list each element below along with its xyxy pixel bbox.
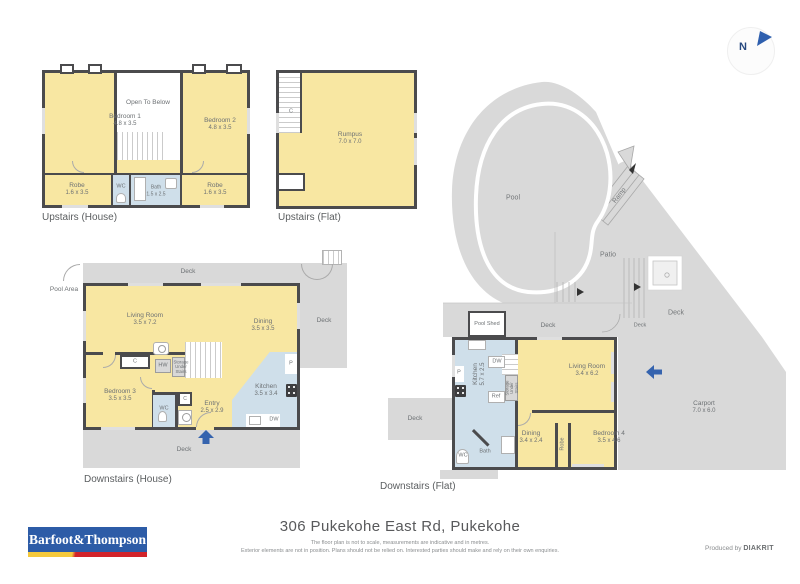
bedroom4-label: Bedroom 4 3.5 x 4.6 (593, 430, 625, 446)
window (83, 311, 86, 341)
pantry-label: P (289, 360, 293, 367)
window (247, 108, 250, 134)
room-name: Bedroom 2 (204, 117, 236, 124)
patio-label: Patio (600, 250, 616, 259)
produced-by: Produced by DIAKRIT (705, 545, 774, 552)
pantry-label: P (457, 369, 461, 376)
dining-label: Dining 3.5 x 3.5 (251, 318, 274, 334)
wall-notch (192, 64, 206, 74)
room-name: Entry (204, 400, 219, 407)
stairs-icon (185, 342, 222, 378)
wall-notch (60, 64, 74, 74)
flat-living-label: Living Room 3.4 x 6.2 (569, 363, 605, 379)
deck-stairs-icon (322, 250, 342, 265)
stairs-icon (279, 73, 300, 133)
sink-icon (468, 340, 486, 350)
room-name: Kitchen (255, 383, 277, 390)
robe-left-label: Robe 1.6 x 3.5 (65, 182, 88, 198)
pool-area-label: Pool Area (50, 286, 78, 294)
house-deck-right-label: Deck (317, 317, 332, 325)
spa-inner (653, 261, 677, 285)
hot-water-label: HW (158, 362, 167, 369)
room-name: Kitchen (472, 363, 479, 385)
entry-label: Entry 2.5 x 2.9 (200, 400, 223, 416)
open-below-label: Open To Below (126, 99, 170, 107)
dishwasher-icon (249, 416, 261, 425)
flat-dining-label: Dining 3.4 x 2.4 (519, 430, 542, 446)
room-name: Dining (522, 430, 540, 437)
wall (555, 423, 558, 467)
bath-label: Bath 1.5 x 2.5 (146, 185, 165, 198)
room-dims: 2.5 x 2.9 (200, 408, 223, 416)
entry-arrow-icon (198, 430, 214, 445)
wc-label: WC (159, 405, 168, 412)
room-name: Robe (207, 182, 223, 189)
wall (568, 423, 571, 467)
storage-label: Storage Under Stairs (505, 377, 520, 400)
window (276, 113, 279, 133)
stove-burners-icon (288, 386, 290, 388)
dishwasher-label: DW (492, 358, 501, 365)
house-deck-right (300, 263, 347, 368)
disclaimer-line1: The floor plan is not to scale, measurem… (0, 540, 800, 546)
flat-deck-bottom (440, 470, 498, 479)
wall-notch (226, 64, 242, 74)
deck-door-label: Deck (634, 322, 647, 329)
room-dims: 7.0 x 7.0 (338, 139, 362, 147)
carport-label: Carport 7.0 x 6.0 (692, 400, 715, 416)
room-dims: 5.7 x 2.5 (480, 362, 488, 385)
room-name: Robe (69, 182, 85, 189)
window (297, 303, 300, 329)
stove-icon (286, 384, 297, 397)
room-dims: 3.5 x 7.2 (127, 320, 163, 328)
room-dims: 4.8 x 3.5 (109, 121, 141, 129)
upstairs-flat-title: Upstairs (Flat) (278, 212, 341, 223)
stove-burners-icon (457, 387, 459, 389)
window (128, 283, 163, 286)
living-room-label: Living Room 3.5 x 7.2 (127, 312, 163, 328)
room-dims: 3.5 x 4.6 (593, 438, 625, 446)
downstairs-flat-title: Downstairs (Flat) (380, 481, 456, 492)
house-deck-top-label: Deck (181, 268, 196, 276)
room-dims: 1.6 x 3.5 (65, 190, 88, 198)
room-dims: 1.5 x 2.5 (146, 191, 165, 198)
room-name: Living Room (569, 363, 605, 370)
closet2-label: C (183, 396, 187, 403)
toilet-icon (158, 411, 167, 422)
bedroom3-label: Bedroom 3 3.5 x 3.5 (104, 388, 136, 404)
flat-wc-label: WC (458, 452, 467, 459)
window (42, 108, 45, 134)
room-dims: 7.0 x 6.0 (692, 408, 715, 416)
heater-dial-icon (158, 345, 166, 353)
window (414, 138, 417, 165)
wall (86, 352, 103, 355)
flat-robe-label: Robe (559, 437, 566, 450)
closet-label: C (133, 358, 137, 365)
closet-label: C (289, 108, 293, 115)
room-name: Carport (693, 400, 715, 407)
floor-plan-canvas: N Pool Ramp Patio Deck Deck Deck (0, 0, 800, 584)
bedroom2-label: Bedroom 2 4.8 x 3.5 (204, 117, 236, 133)
bedroom1-room (45, 73, 114, 173)
hallway-room (117, 160, 180, 173)
room-dims: 3.5 x 3.4 (254, 391, 277, 399)
wc-label: WC (116, 183, 125, 190)
room-dims: 4.8 x 3.5 (204, 125, 236, 133)
window (452, 355, 455, 377)
flat-kitchen-label: Kitchen 5.7 x 2.5 (472, 362, 488, 385)
window (62, 205, 88, 208)
bedroom1-label: Bedroom 1 4.8 x 3.5 (109, 113, 141, 129)
storage-label: Storage Under Stairs (172, 360, 191, 375)
deck-right-label: Deck (668, 308, 684, 317)
window (611, 382, 614, 402)
room-name: Bedroom 1 (109, 113, 141, 120)
window (200, 205, 224, 208)
room-dims: 3.4 x 2.4 (519, 438, 542, 446)
downstairs-house-plan (83, 283, 300, 430)
room-name: Living Room (127, 312, 163, 319)
window (611, 352, 614, 374)
producer-name: DIAKRIT (743, 545, 774, 552)
window (101, 427, 135, 430)
laundry-drum-icon (182, 413, 191, 422)
toilet-icon (116, 193, 126, 203)
window (414, 113, 417, 133)
room-dims: 3.4 x 6.2 (569, 371, 605, 379)
dishwasher-label: DW (269, 416, 278, 423)
robe-right-label: Robe 1.6 x 3.5 (203, 182, 226, 198)
room-name: Bath (151, 185, 161, 191)
pool-shed-label: Pool Shed (474, 321, 500, 327)
upstairs-house-title: Upstairs (House) (42, 212, 117, 223)
wall (300, 73, 302, 133)
stairs-icon (117, 132, 167, 160)
window (83, 378, 86, 403)
rumpus-label: Rumpus 7.0 x 7.0 (338, 131, 362, 147)
wall (532, 410, 614, 413)
wall-notch (88, 64, 102, 74)
flat-deck-left-label: Deck (408, 415, 423, 423)
door-arc-icon (63, 264, 80, 281)
fridge-label: Ref (492, 393, 501, 400)
downstairs-house-title: Downstairs (House) (84, 474, 172, 485)
room-dims: 3.5 x 3.5 (104, 396, 136, 404)
pool-label: Pool (506, 193, 520, 202)
deck-strip-label: Deck (541, 322, 556, 330)
window (537, 337, 562, 340)
closet-room (279, 173, 305, 191)
produced-by-text: Produced by (705, 545, 742, 552)
flat-bath-label: Bath (479, 448, 490, 455)
room-name: Bedroom 3 (104, 388, 136, 395)
downstairs-flat-plan (452, 337, 617, 470)
room-name: Rumpus (338, 131, 362, 138)
disclaimer-line2: Exterior elements are not in position. P… (0, 548, 800, 554)
stove-icon (455, 385, 466, 397)
room-dims: 1.6 x 3.5 (203, 190, 226, 198)
room-dims: 3.5 x 3.5 (251, 326, 274, 334)
window (201, 283, 241, 286)
room-name: Dining (254, 318, 272, 325)
room-name: Bedroom 4 (593, 430, 625, 437)
kitchen-label: Kitchen 3.5 x 3.4 (254, 383, 277, 399)
bath-vanity-icon (501, 436, 515, 454)
bath-tub-icon (134, 177, 146, 201)
address-title: 306 Pukekohe East Rd, Pukekohe (0, 518, 800, 535)
house-deck-bottom-label: Deck (177, 446, 192, 454)
vanity-icon (165, 178, 177, 189)
window (572, 464, 604, 467)
flat-entry-arrow-icon (646, 365, 663, 379)
